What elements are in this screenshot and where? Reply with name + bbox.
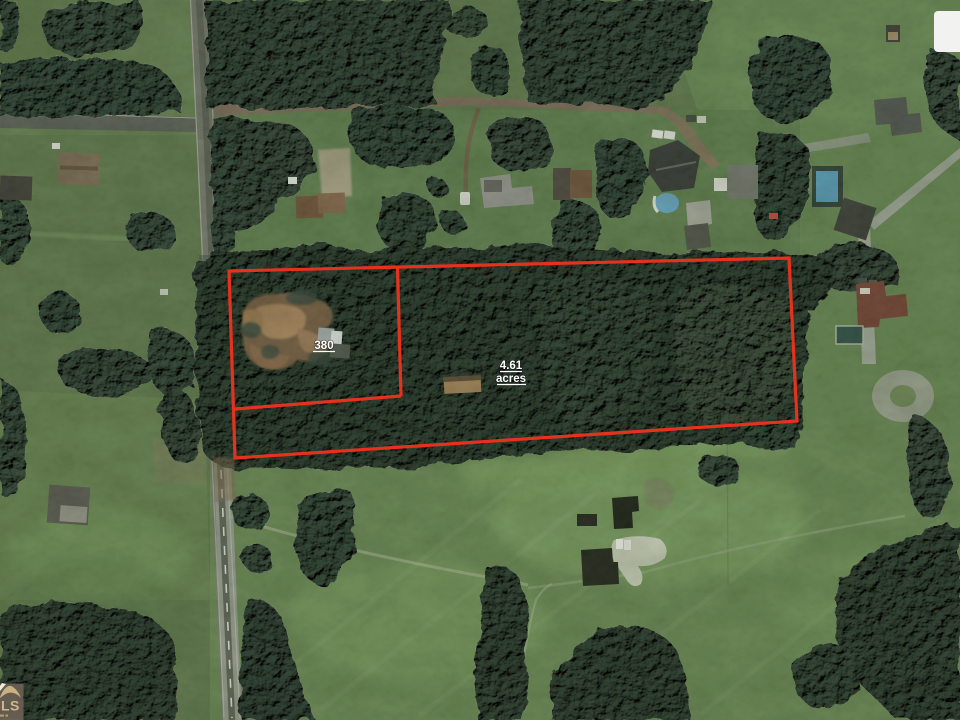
svg-text:acres: acres [496, 373, 526, 385]
svg-text:4.61: 4.61 [500, 360, 523, 372]
svg-text:380: 380 [314, 340, 333, 352]
svg-text:LS: LS [1, 698, 20, 714]
